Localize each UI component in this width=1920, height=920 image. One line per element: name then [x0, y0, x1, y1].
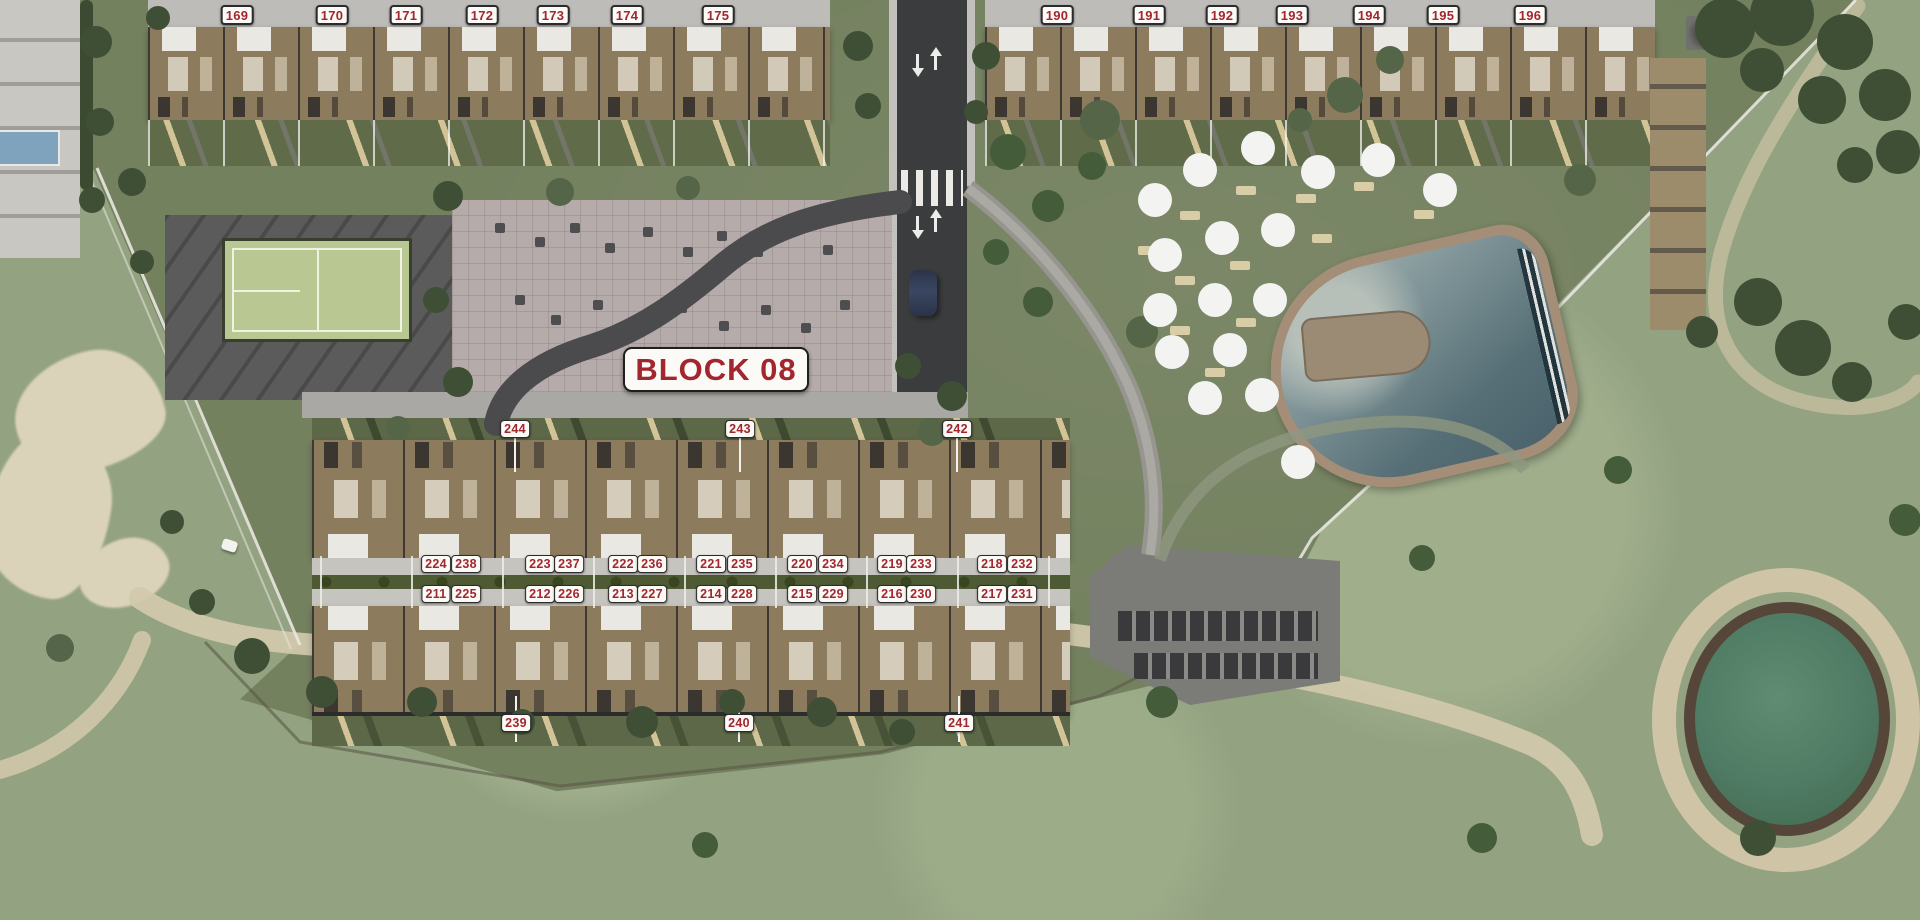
unit-label-213[interactable]: 213 — [608, 585, 638, 603]
unit-label-228[interactable]: 228 — [727, 585, 757, 603]
unit-label-170[interactable]: 170 — [316, 5, 349, 25]
unit-label-241[interactable]: 241 — [944, 714, 974, 732]
unit-label-220[interactable]: 220 — [787, 555, 817, 573]
unit-label-240[interactable]: 240 — [724, 714, 754, 732]
unit-label-219[interactable]: 219 — [877, 555, 907, 573]
unit-labels-layer: 1691701711721731741751901911921931941951… — [0, 0, 1920, 920]
unit-label-233[interactable]: 233 — [906, 555, 936, 573]
unit-label-237[interactable]: 237 — [554, 555, 584, 573]
unit-label-190[interactable]: 190 — [1041, 5, 1074, 25]
unit-label-221[interactable]: 221 — [696, 555, 726, 573]
unit-label-193[interactable]: 193 — [1276, 5, 1309, 25]
site-plan: 1691701711721731741751901911921931941951… — [0, 0, 1920, 920]
unit-label-175[interactable]: 175 — [702, 5, 735, 25]
unit-label-217[interactable]: 217 — [977, 585, 1007, 603]
unit-label-239[interactable]: 239 — [501, 714, 531, 732]
unit-label-174[interactable]: 174 — [611, 5, 644, 25]
unit-label-242[interactable]: 242 — [942, 420, 972, 438]
unit-label-229[interactable]: 229 — [818, 585, 848, 603]
unit-label-223[interactable]: 223 — [525, 555, 555, 573]
unit-label-212[interactable]: 212 — [525, 585, 555, 603]
unit-label-194[interactable]: 194 — [1353, 5, 1386, 25]
unit-label-192[interactable]: 192 — [1206, 5, 1239, 25]
unit-label-238[interactable]: 238 — [451, 555, 481, 573]
unit-label-214[interactable]: 214 — [696, 585, 726, 603]
unit-label-171[interactable]: 171 — [390, 5, 423, 25]
unit-label-244[interactable]: 244 — [500, 420, 530, 438]
unit-label-196[interactable]: 196 — [1514, 5, 1547, 25]
unit-label-211[interactable]: 211 — [421, 585, 450, 603]
unit-label-215[interactable]: 215 — [787, 585, 817, 603]
unit-label-172[interactable]: 172 — [466, 5, 499, 25]
unit-label-191[interactable]: 191 — [1133, 5, 1166, 25]
unit-label-218[interactable]: 218 — [977, 555, 1007, 573]
unit-label-195[interactable]: 195 — [1427, 5, 1460, 25]
unit-label-173[interactable]: 173 — [537, 5, 570, 25]
unit-label-226[interactable]: 226 — [554, 585, 584, 603]
unit-label-225[interactable]: 225 — [451, 585, 481, 603]
unit-label-224[interactable]: 224 — [421, 555, 451, 573]
unit-label-243[interactable]: 243 — [725, 420, 755, 438]
unit-label-227[interactable]: 227 — [637, 585, 667, 603]
unit-label-216[interactable]: 216 — [877, 585, 907, 603]
unit-label-234[interactable]: 234 — [818, 555, 848, 573]
unit-label-232[interactable]: 232 — [1007, 555, 1037, 573]
unit-label-222[interactable]: 222 — [608, 555, 638, 573]
unit-label-230[interactable]: 230 — [906, 585, 936, 603]
unit-label-235[interactable]: 235 — [727, 555, 757, 573]
unit-label-169[interactable]: 169 — [221, 5, 254, 25]
unit-label-236[interactable]: 236 — [637, 555, 667, 573]
block-badge: BLOCK 08 — [623, 347, 809, 392]
unit-label-231[interactable]: 231 — [1007, 585, 1037, 603]
